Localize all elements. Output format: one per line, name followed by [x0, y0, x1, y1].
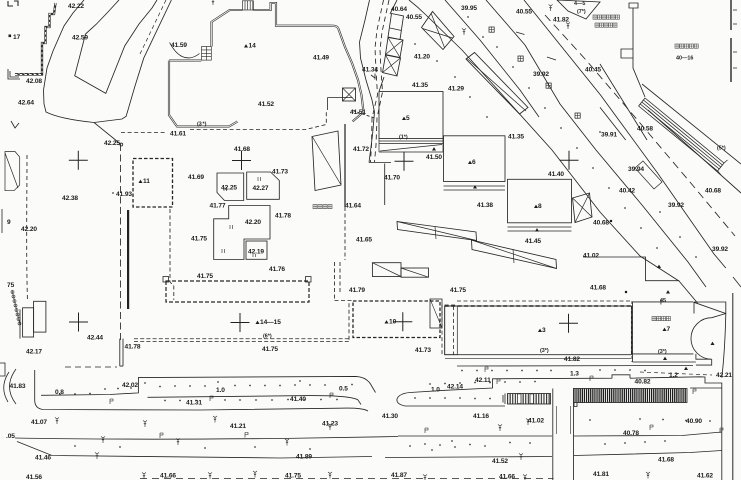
svg-text:41.70: 41.70	[384, 175, 400, 182]
svg-text:41.35: 41.35	[412, 82, 428, 89]
svg-text:42.02: 42.02	[122, 382, 138, 389]
svg-text:45: 45	[660, 298, 666, 304]
svg-text:40.68: 40.68	[705, 188, 721, 195]
svg-text:41.72: 41.72	[353, 146, 369, 153]
svg-text:41.20: 41.20	[414, 54, 430, 61]
svg-text:41.66: 41.66	[499, 474, 515, 480]
svg-text:41.62: 41.62	[697, 473, 713, 480]
svg-text:14—15: 14—15	[260, 319, 281, 326]
svg-text:41.75: 41.75	[191, 236, 207, 243]
svg-text:40.58: 40.58	[637, 126, 653, 133]
svg-text:40.42: 40.42	[619, 188, 635, 195]
svg-text:40.55: 40.55	[516, 9, 532, 16]
svg-text:42.14: 42.14	[447, 384, 463, 391]
svg-text:42.20: 42.20	[245, 219, 261, 226]
svg-text:42.59: 42.59	[72, 35, 88, 42]
svg-text:(1*): (1*)	[399, 135, 408, 141]
svg-text:1.2: 1.2	[669, 372, 678, 379]
svg-text:41.02: 41.02	[528, 418, 544, 425]
svg-text:42.21: 42.21	[716, 372, 732, 379]
svg-text:41.75: 41.75	[262, 346, 278, 353]
svg-text:41.75: 41.75	[450, 287, 466, 294]
svg-text:41.93: 41.93	[116, 191, 132, 198]
svg-text:42.20: 42.20	[21, 226, 37, 233]
svg-text:41.79: 41.79	[349, 287, 365, 294]
svg-text:17: 17	[13, 34, 21, 41]
svg-text:39.95: 39.95	[461, 5, 477, 12]
svg-text:41.78: 41.78	[125, 344, 141, 351]
svg-text:41.46: 41.46	[35, 455, 51, 462]
svg-text:41.89: 41.89	[296, 454, 312, 461]
svg-text:41.59: 41.59	[171, 42, 187, 49]
svg-text:41.75: 41.75	[197, 273, 213, 280]
svg-text:41.16: 41.16	[473, 413, 489, 420]
svg-text:41.78: 41.78	[275, 213, 291, 220]
svg-text:41.56: 41.56	[26, 474, 42, 480]
svg-text:14: 14	[249, 43, 257, 50]
svg-text:41.51: 41.51	[350, 109, 366, 116]
svg-text:40.45: 40.45	[585, 67, 601, 74]
svg-text:1.3: 1.3	[570, 371, 579, 378]
svg-text:41.68: 41.68	[658, 457, 674, 464]
svg-text:4—5: 4—5	[574, 1, 585, 7]
svg-text:41.38: 41.38	[477, 202, 493, 209]
svg-text:41.66: 41.66	[160, 473, 176, 480]
svg-text:41.40: 41.40	[290, 396, 306, 403]
svg-text:39.92: 39.92	[533, 71, 549, 78]
svg-text:40.82: 40.82	[635, 379, 651, 386]
svg-text:41.07: 41.07	[31, 419, 47, 426]
svg-text:(3*): (3*)	[540, 348, 549, 354]
svg-text:41.45: 41.45	[525, 238, 541, 245]
svg-text:40.78: 40.78	[623, 430, 639, 437]
svg-text:42.17: 42.17	[26, 349, 42, 356]
svg-text:6: 6	[472, 159, 476, 166]
svg-text:41.73: 41.73	[272, 169, 288, 176]
svg-text:39.92: 39.92	[668, 202, 684, 209]
svg-text:41.61: 41.61	[170, 131, 186, 138]
svg-text:1.0: 1.0	[216, 387, 225, 394]
svg-text:42.25: 42.25	[104, 140, 120, 147]
svg-text:(5*): (5*)	[717, 146, 726, 152]
svg-text:10: 10	[389, 319, 397, 326]
svg-text:41.49: 41.49	[313, 55, 329, 62]
svg-text:5: 5	[406, 115, 410, 122]
svg-text:39.92: 39.92	[712, 246, 728, 253]
svg-text:41.75: 41.75	[285, 473, 301, 480]
svg-text:42.08: 42.08	[26, 78, 42, 85]
svg-text:41.81: 41.81	[593, 471, 609, 478]
svg-text:39.91: 39.91	[601, 132, 617, 139]
svg-text:41.73: 41.73	[415, 347, 431, 354]
svg-text:41.87: 41.87	[391, 472, 407, 479]
svg-text:40—16: 40—16	[676, 56, 693, 62]
svg-text:41.52: 41.52	[492, 458, 508, 465]
svg-text:41.29: 41.29	[448, 86, 464, 93]
svg-text:41.83: 41.83	[10, 383, 26, 390]
svg-text:41.34: 41.34	[362, 67, 378, 74]
svg-text:40.90: 40.90	[686, 418, 702, 425]
svg-text:42.38: 42.38	[62, 195, 78, 202]
svg-text:41.77: 41.77	[210, 203, 226, 210]
svg-text:40.55: 40.55	[406, 14, 422, 21]
svg-text:75: 75	[7, 282, 15, 289]
svg-text:42.64: 42.64	[18, 100, 34, 107]
svg-text:.05: .05	[6, 433, 15, 440]
svg-text:41.76: 41.76	[269, 266, 285, 273]
svg-text:41.30: 41.30	[382, 413, 398, 420]
svg-text:41.65: 41.65	[356, 237, 372, 244]
svg-text:41.35: 41.35	[508, 134, 524, 141]
svg-text:39.94: 39.94	[628, 166, 644, 173]
svg-text:8: 8	[538, 203, 542, 210]
svg-text:41.69: 41.69	[188, 174, 204, 181]
svg-text:0.5: 0.5	[339, 386, 348, 393]
svg-text:42.27: 42.27	[253, 185, 269, 192]
svg-text:(7*): (7*)	[577, 9, 586, 15]
svg-text:41.82: 41.82	[553, 17, 569, 24]
svg-text:7: 7	[667, 326, 671, 333]
svg-text:41.64: 41.64	[345, 203, 361, 210]
svg-text:41.50: 41.50	[426, 154, 442, 161]
svg-text:42.11: 42.11	[475, 377, 491, 384]
svg-text:40.64: 40.64	[391, 6, 407, 13]
svg-text:42.19: 42.19	[248, 249, 264, 256]
svg-text:41.02: 41.02	[583, 253, 599, 260]
svg-text:11: 11	[143, 178, 150, 185]
svg-text:41.68: 41.68	[590, 285, 606, 292]
svg-text:42.25: 42.25	[221, 185, 237, 192]
svg-text:41.52: 41.52	[258, 101, 274, 108]
svg-text:(3*): (3*)	[658, 349, 667, 355]
svg-text:41.68: 41.68	[234, 146, 250, 153]
svg-text:1.0: 1.0	[431, 387, 440, 394]
svg-text:(6*): (6*)	[263, 334, 272, 340]
svg-text:0.8: 0.8	[55, 389, 64, 396]
svg-text:3: 3	[542, 327, 546, 334]
svg-text:41.23: 41.23	[322, 421, 338, 428]
svg-text:*): *)	[203, 122, 207, 128]
svg-text:41.82: 41.82	[564, 356, 580, 363]
svg-text:42.44: 42.44	[87, 335, 103, 342]
svg-text:41.21: 41.21	[230, 423, 246, 430]
svg-text:(3: (3	[197, 122, 202, 128]
svg-text:42.22: 42.22	[68, 3, 84, 10]
svg-text:40.68: 40.68	[593, 220, 609, 227]
svg-text:41.40: 41.40	[548, 171, 564, 178]
svg-text:41.31: 41.31	[186, 400, 202, 407]
svg-text:9: 9	[7, 219, 11, 226]
